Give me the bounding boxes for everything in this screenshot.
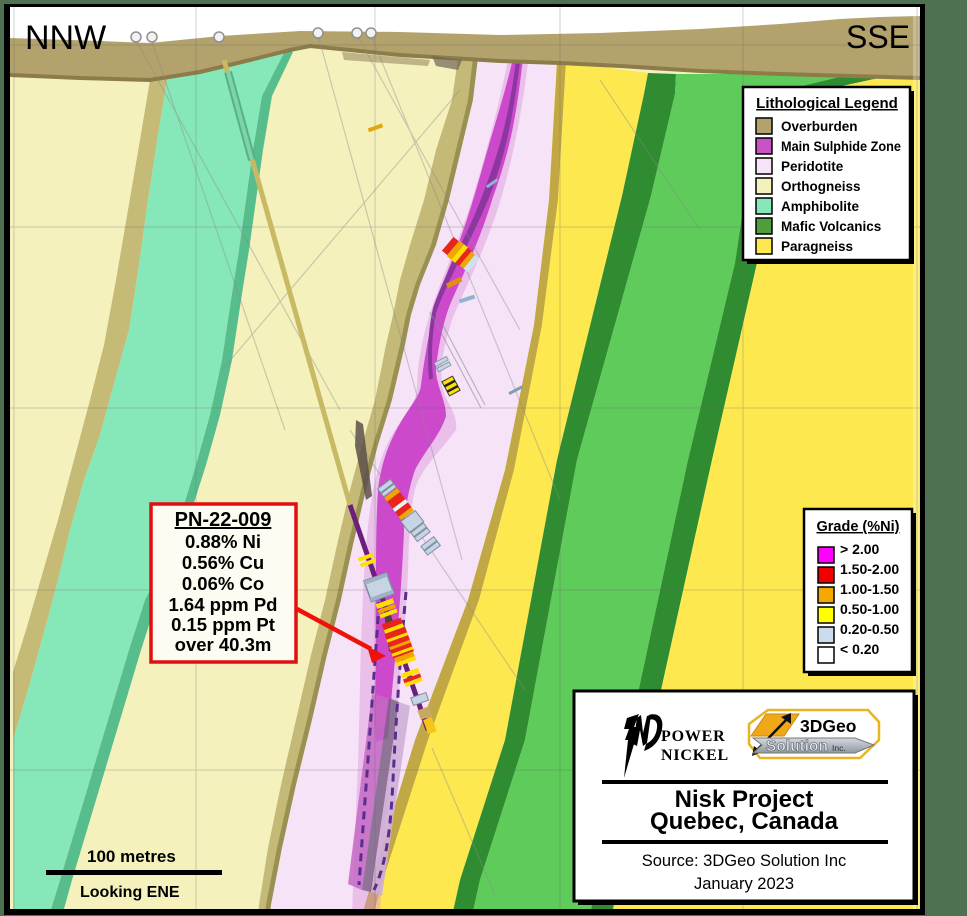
- svg-text:< 0.20: < 0.20: [840, 641, 880, 657]
- svg-text:Orthogneiss: Orthogneiss: [781, 179, 861, 194]
- svg-text:Lithological Legend: Lithological Legend: [756, 95, 898, 112]
- svg-text:1.50-2.00: 1.50-2.00: [840, 561, 899, 577]
- svg-text:Looking ENE: Looking ENE: [80, 884, 180, 901]
- svg-text:Solution: Solution: [766, 738, 828, 755]
- svg-text:Peridotite: Peridotite: [781, 159, 844, 174]
- svg-text:0.88% Ni: 0.88% Ni: [185, 531, 261, 552]
- svg-text:SSE: SSE: [846, 19, 910, 55]
- svg-text:PN-22-009: PN-22-009: [175, 509, 272, 531]
- svg-text:0.50-1.00: 0.50-1.00: [840, 601, 899, 617]
- svg-text:Inc.: Inc.: [832, 743, 846, 753]
- svg-text:3DGeo: 3DGeo: [800, 716, 856, 736]
- svg-text:0.20-0.50: 0.20-0.50: [840, 621, 899, 637]
- svg-text:over 40.3m: over 40.3m: [175, 634, 272, 655]
- svg-text:Quebec, Canada: Quebec, Canada: [650, 808, 839, 835]
- svg-text:Amphibolite: Amphibolite: [781, 199, 859, 214]
- svg-text:0.15 ppm Pt: 0.15 ppm Pt: [171, 614, 275, 635]
- svg-text:NNW: NNW: [25, 19, 106, 57]
- svg-text:Main Sulphide Zone: Main Sulphide Zone: [781, 139, 901, 154]
- svg-text:Grade (%Ni): Grade (%Ni): [817, 519, 900, 535]
- svg-text:NICKEL: NICKEL: [661, 747, 729, 764]
- svg-text:> 2.00: > 2.00: [840, 541, 880, 557]
- svg-text:1.64 ppm Pd: 1.64 ppm Pd: [169, 594, 278, 615]
- svg-text:0.56% Cu: 0.56% Cu: [182, 552, 264, 573]
- svg-text:100 metres: 100 metres: [87, 847, 176, 866]
- svg-text:January 2023: January 2023: [694, 875, 794, 893]
- svg-text:POWER: POWER: [661, 728, 725, 745]
- svg-text:0.06% Co: 0.06% Co: [182, 573, 264, 594]
- svg-text:Source: 3DGeo Solution Inc: Source: 3DGeo Solution Inc: [642, 852, 847, 870]
- svg-text:1.00-1.50: 1.00-1.50: [840, 581, 899, 597]
- svg-text:Overburden: Overburden: [781, 119, 858, 134]
- svg-text:Mafic Volcanics: Mafic Volcanics: [781, 219, 881, 234]
- svg-text:Paragneiss: Paragneiss: [781, 239, 853, 254]
